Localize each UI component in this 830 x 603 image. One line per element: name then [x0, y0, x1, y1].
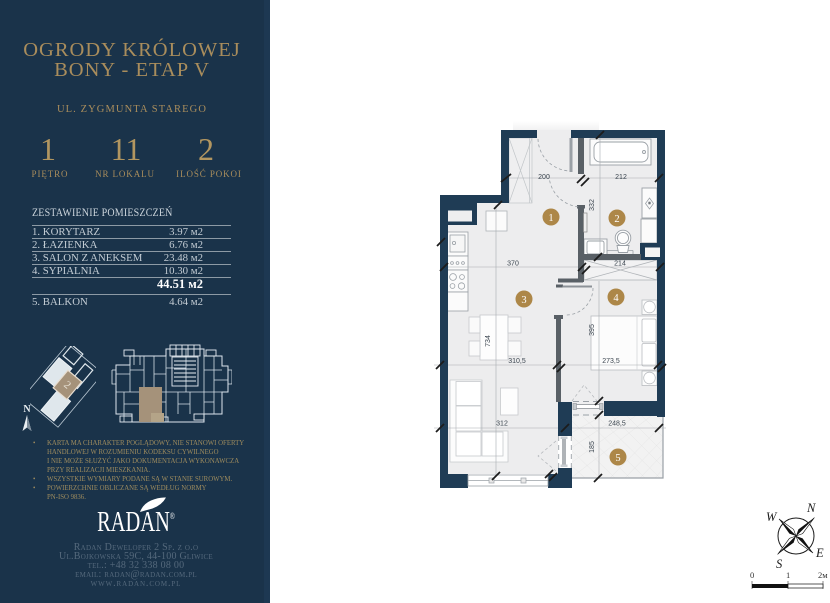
svg-text:2м: 2м	[818, 570, 828, 580]
svg-text:312: 312	[496, 421, 508, 428]
svg-text:734: 734	[485, 335, 492, 347]
svg-text:185: 185	[589, 441, 596, 453]
svg-text:1: 1	[786, 570, 790, 580]
svg-text:310,5: 310,5	[508, 358, 526, 365]
svg-text:248,5: 248,5	[608, 421, 626, 428]
svg-text:0: 0	[750, 570, 754, 580]
svg-text:N: N	[806, 501, 816, 515]
svg-text:273,5: 273,5	[602, 358, 620, 365]
svg-text:W: W	[766, 510, 778, 524]
svg-text:2: 2	[614, 214, 619, 225]
svg-text:200: 200	[538, 174, 550, 181]
svg-text:5: 5	[615, 453, 620, 464]
svg-text:214: 214	[614, 261, 626, 268]
svg-text:395: 395	[589, 324, 596, 336]
svg-text:370: 370	[507, 261, 519, 268]
svg-text:E: E	[815, 546, 824, 560]
svg-text:3: 3	[521, 295, 526, 306]
svg-text:4: 4	[613, 293, 619, 304]
svg-text:1: 1	[548, 213, 553, 224]
svg-text:212: 212	[615, 174, 627, 181]
svg-text:332: 332	[589, 199, 596, 211]
